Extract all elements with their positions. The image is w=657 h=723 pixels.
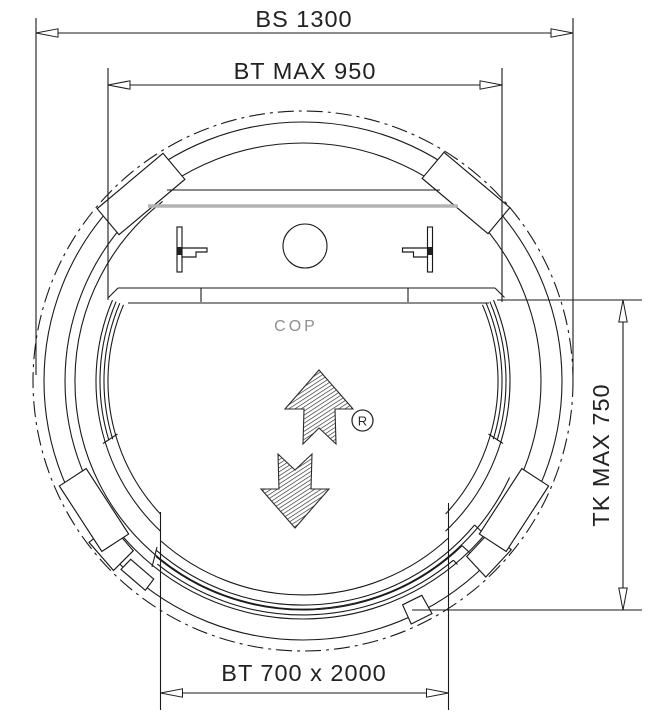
dimension-label-door: BT 700 x 2000 xyxy=(221,660,386,686)
arrowhead-down xyxy=(619,588,627,610)
joint-lower-left-slab xyxy=(121,559,154,590)
landing-header xyxy=(148,190,458,272)
bracket-upper-left xyxy=(97,153,185,234)
arrowhead-up xyxy=(619,300,627,322)
bracket-left xyxy=(59,469,128,552)
arrowhead-left xyxy=(36,29,58,37)
car-corner-right xyxy=(495,288,505,298)
car-corner-left xyxy=(109,288,119,298)
dimension-label-tk-max: TK MAX 750 xyxy=(588,383,614,526)
brand-logo: R xyxy=(261,370,373,528)
left-panel-stack xyxy=(96,300,161,531)
right-panel-stack xyxy=(446,300,511,531)
cop-label: COP xyxy=(274,318,318,335)
dimension-label-bs: BS 1300 xyxy=(255,6,352,32)
svg-text:R: R xyxy=(358,414,367,429)
arrowhead-right xyxy=(427,689,449,697)
hinge-pivot xyxy=(178,247,182,255)
arrowhead-left xyxy=(161,689,183,697)
registered-trademark-icon: R xyxy=(352,410,373,431)
hinge-pivot xyxy=(428,247,432,255)
down-arrow-icon xyxy=(261,454,329,528)
ceiling-opening xyxy=(283,224,327,268)
drawing-page: COP R BS 1300 BT MAX 950 TK MAX 750 xyxy=(0,0,657,723)
technical-drawing: COP R BS 1300 BT MAX 950 TK MAX 750 xyxy=(0,0,657,723)
up-arrow-icon xyxy=(285,370,353,444)
arrowhead-right xyxy=(480,81,502,89)
hinge-symbol-right xyxy=(403,227,433,272)
dimension-label-bt-max: BT MAX 950 xyxy=(234,58,377,84)
bracket-right xyxy=(479,469,548,552)
arrowhead-right xyxy=(551,29,573,37)
dimension-car-depth: TK MAX 750 xyxy=(412,300,642,610)
hinge-symbol-left xyxy=(177,227,207,272)
arrowhead-left xyxy=(108,81,130,89)
